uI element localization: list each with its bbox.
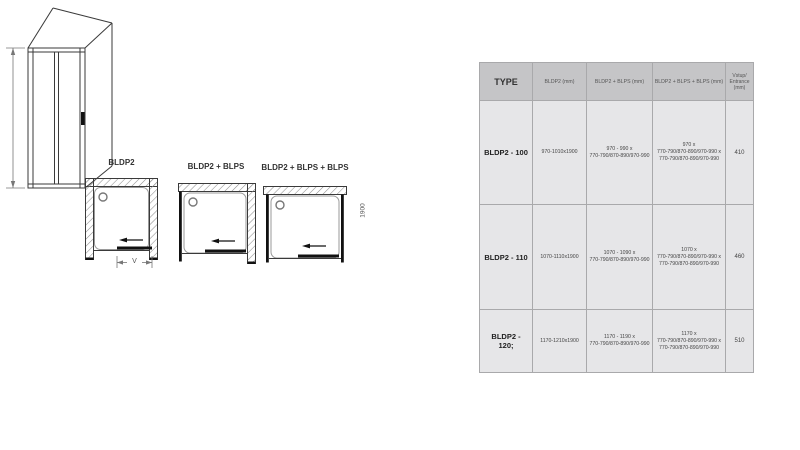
spec-sheet-page: BLDP2 BLDP2 + BLPS BLDP2 + BLPS + BLPS: [0, 0, 800, 450]
entrance-cell: 460: [726, 205, 754, 310]
drain-icon: [276, 201, 284, 209]
fixed-panel-blps-right: [341, 195, 344, 263]
spec-table-panel: TYPE BLDP2 (mm) BLDP2 + BLPS (mm) BLDP2 …: [479, 62, 754, 373]
fixed-panel-blps: [179, 192, 182, 262]
col-header-bldp2-blps-blps: BLDP2 + BLPS + BLPS (mm): [653, 63, 726, 101]
height-dimension: [6, 48, 25, 188]
entrance-cell: 410: [726, 101, 754, 205]
dims-cell: 1170 x 770-790/870-890/970-990 x 770-790…: [653, 310, 726, 373]
dims-cell: 1070 - 1090 x 770-790/870-890/970-990: [587, 205, 653, 310]
drain-icon: [189, 198, 197, 206]
table-row-bldp2-100: BLDP2 - 100 970-1010x1900 970 - 990 x 77…: [480, 101, 754, 205]
dims-cell: 1070 x 770-790/870-890/970-990 x 770-790…: [653, 205, 726, 310]
table-header-row: TYPE BLDP2 (mm) BLDP2 + BLPS (mm) BLDP2 …: [480, 63, 754, 101]
diagram-label-bldp2: BLDP2: [85, 158, 158, 167]
wall-cap: [86, 258, 94, 261]
dims-cell: 970 x 770-790/870-890/970-990 x 770-790/…: [653, 101, 726, 205]
type-cell: BLDP2 - 110: [480, 205, 533, 310]
type-cell: BLDP2 - 120;: [480, 310, 533, 373]
wall-cap: [248, 262, 256, 265]
col-header-entrance: Vstup/ Entrance (mm): [726, 63, 754, 101]
bldp2-blps-top-view-diagram: [178, 181, 258, 267]
diagram-label-bldp2-blps-blps: BLDP2 + BLPS + BLPS: [255, 163, 355, 172]
bldp2-top-view-diagram: [85, 176, 160, 272]
dims-cell: 1170-1210x1900: [533, 310, 587, 373]
spec-table: TYPE BLDP2 (mm) BLDP2 + BLPS (mm) BLDP2 …: [479, 62, 754, 373]
col-header-bldp2-blps: BLDP2 + BLPS (mm): [587, 63, 653, 101]
bldp2-blps-blps-top-view-diagram: [262, 184, 348, 268]
door-handle: [81, 112, 85, 125]
col-header-type: TYPE: [480, 63, 533, 101]
entrance-cell: 510: [726, 310, 754, 373]
wall-cap: [150, 258, 158, 261]
dims-cell: 970-1010x1900: [533, 101, 587, 205]
fixed-panel-blps-left: [266, 195, 269, 263]
dims-cell: 1170 - 1190 x 770-790/870-890/970-990: [587, 310, 653, 373]
type-cell: BLDP2 - 100: [480, 101, 533, 205]
dims-cell: 970 - 990 x 770-790/870-890/970-990: [587, 101, 653, 205]
drain-icon: [99, 193, 107, 201]
entrance-dimension-label: V: [124, 258, 145, 265]
dims-cell: 1070-1110x1900: [533, 205, 587, 310]
table-row-bldp2-120: BLDP2 - 120; 1170-1210x1900 1170 - 1190 …: [480, 310, 754, 373]
diagram-label-bldp2-blps: BLDP2 + BLPS: [176, 162, 256, 171]
col-header-bldp2: BLDP2 (mm): [533, 63, 587, 101]
table-row-bldp2-110: BLDP2 - 110 1070-1110x1900 1070 - 1090 x…: [480, 205, 754, 310]
height-dimension-label: 1900: [360, 196, 367, 226]
